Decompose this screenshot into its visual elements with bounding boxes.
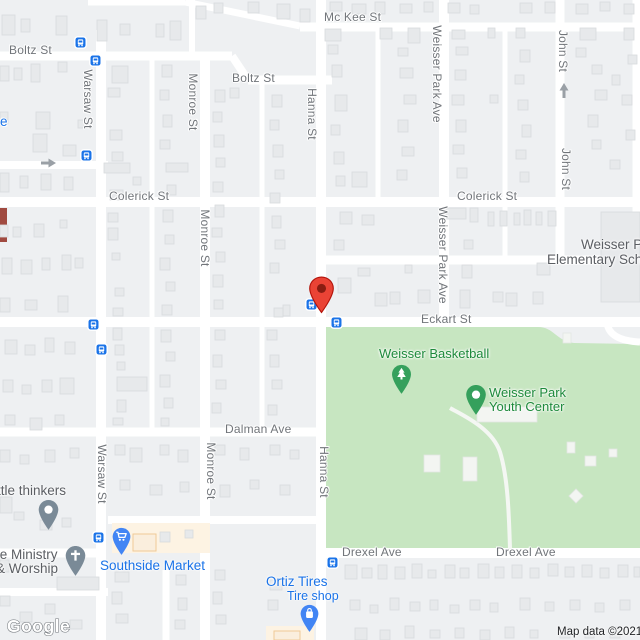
poi-label-school-line1[interactable]: Weisser P: [581, 238, 640, 252]
poi-label-fragment[interactable]: e: [0, 115, 8, 129]
bus-stop-icon[interactable]: [326, 556, 339, 569]
street-label-eckart: Eckart St: [421, 313, 471, 325]
poi-label-ortiz-line1[interactable]: Ortiz Tires: [266, 575, 328, 589]
street-label-monroe-2: Monroe St: [199, 209, 211, 266]
poi-label-basketball[interactable]: Weisser Basketball: [379, 347, 489, 361]
one-way-arrow-right-icon: [41, 158, 56, 168]
poi-label-thinkers[interactable]: ttle thinkers: [0, 484, 66, 498]
street-label-warsaw-1: Warsaw St: [82, 69, 94, 128]
street-label-boltz-1: Boltz St: [9, 44, 52, 56]
bus-stop-icon[interactable]: [74, 36, 87, 49]
red-map-marker[interactable]: [306, 276, 337, 314]
bus-stop-icon[interactable]: [95, 343, 108, 356]
street-label-hanna-1: Hanna St: [306, 88, 318, 140]
park-tree-pin-icon[interactable]: [390, 364, 413, 395]
street-label-mckee: Mc Kee St: [324, 11, 381, 23]
poi-label-ministry-line1: fe Ministry: [0, 548, 58, 562]
street-label-monroe-3: Monroe St: [205, 442, 217, 499]
poi-label-ministry[interactable]: fe Ministry & Worship: [0, 548, 58, 576]
street-label-drexel-1: Drexel Ave: [342, 546, 402, 558]
street-label-monroe-1: Monroe St: [187, 73, 199, 130]
poi-label-youth-line1: Weisser Park: [489, 386, 566, 400]
street-label-colerick-2: Colerick St: [457, 190, 517, 202]
poi-label-southside-market[interactable]: Southside Market: [100, 559, 205, 573]
bus-stop-icon[interactable]: [89, 54, 102, 67]
park-dot-pin-icon[interactable]: [464, 384, 488, 416]
map-attribution: Map data ©2021: [557, 626, 640, 638]
street-label-warsaw-2: Warsaw St: [96, 444, 108, 503]
shopping-bag-pin-icon[interactable]: [299, 604, 320, 633]
poi-label-youth-line2: Youth Center: [489, 400, 566, 414]
poi-label-school-line2[interactable]: Elementary Sch: [547, 253, 640, 267]
street-label-weisser-park-ave-1: Weisser Park Ave: [431, 25, 443, 122]
svg-text:Google: Google: [7, 616, 70, 636]
bus-stop-icon[interactable]: [330, 316, 343, 329]
street-label-boltz-2: Boltz St: [232, 72, 275, 84]
google-logo[interactable]: Google: [5, 613, 85, 639]
bus-stop-icon[interactable]: [87, 318, 100, 331]
poi-label-ministry-line2: & Worship: [0, 562, 58, 576]
street-label-hanna-2: Hanna St: [318, 446, 330, 498]
bus-stop-icon[interactable]: [92, 531, 105, 544]
google-map-canvas[interactable]: Mc Kee St Boltz St Boltz St Colerick St …: [0, 0, 640, 640]
poi-label-youth-center[interactable]: Weisser Park Youth Center: [489, 386, 566, 414]
street-label-john-1: John St: [557, 30, 569, 72]
place-pin-icon[interactable]: [37, 499, 60, 531]
one-way-arrow-up-icon: [559, 83, 569, 98]
church-pin-icon[interactable]: [64, 545, 87, 577]
grocery-cart-pin-icon[interactable]: [111, 527, 132, 556]
bus-stop-icon[interactable]: [80, 149, 93, 162]
street-label-weisser-park-ave-2: Weisser Park Ave: [437, 206, 449, 303]
street-label-drexel-2: Drexel Ave: [496, 546, 556, 558]
poi-label-ortiz-line2[interactable]: Tire shop: [287, 589, 339, 603]
street-label-colerick-1: Colerick St: [109, 190, 169, 202]
street-label-dalman: Dalman Ave: [225, 423, 291, 435]
street-label-john-2: John St: [560, 148, 572, 190]
